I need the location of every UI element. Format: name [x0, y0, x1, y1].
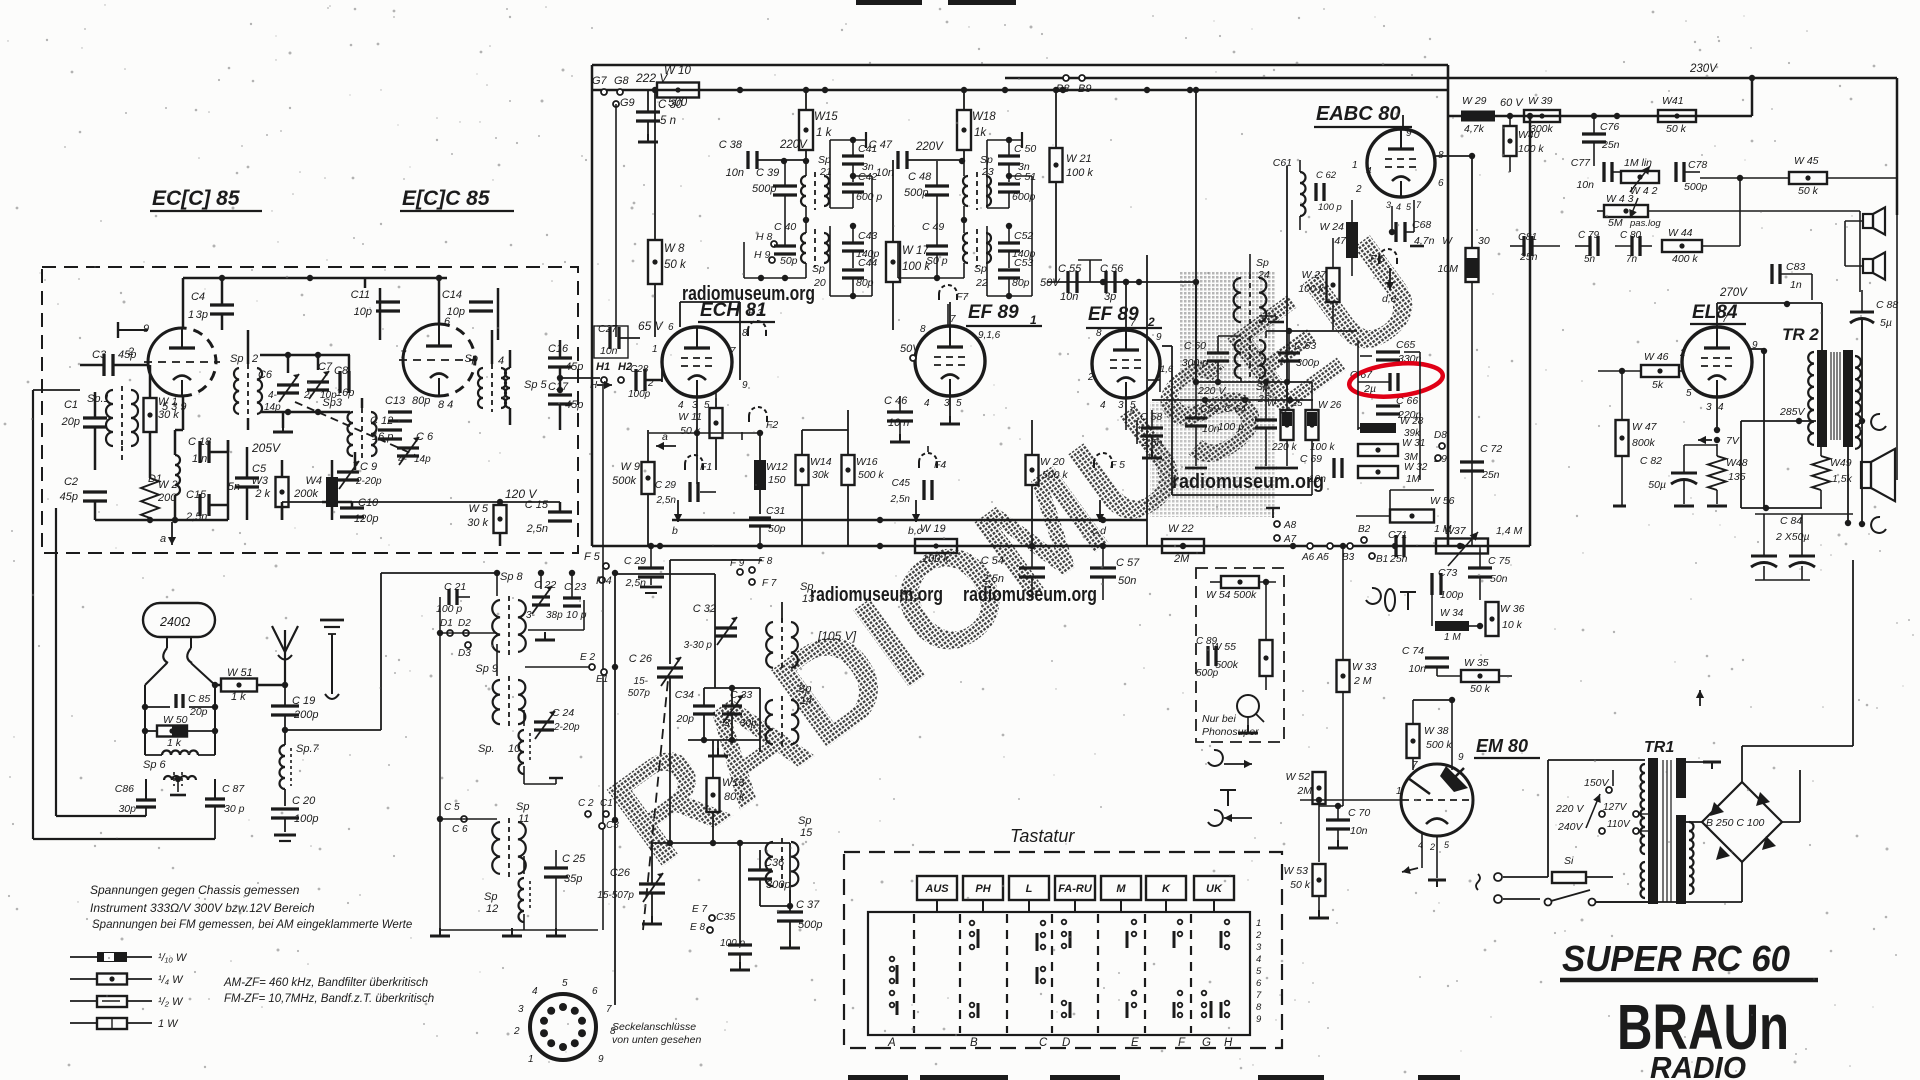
svg-text:W13: W13 [722, 777, 746, 789]
svg-text:2M: 2M [1173, 553, 1190, 565]
svg-text:C16: C16 [548, 343, 569, 355]
svg-text:W 4 3: W 4 3 [1606, 193, 1634, 205]
svg-text:50n: 50n [1490, 573, 1508, 585]
svg-text:W 33: W 33 [1352, 661, 1377, 673]
svg-text:W 38: W 38 [1424, 725, 1449, 737]
svg-text:80p: 80p [856, 277, 874, 289]
svg-text:C 25: C 25 [562, 853, 586, 865]
svg-text:5n: 5n [1584, 254, 1596, 265]
svg-text:1,5k: 1,5k [1832, 473, 1853, 485]
svg-text:7V: 7V [1726, 435, 1740, 447]
svg-text:E 8: E 8 [690, 922, 705, 933]
svg-text:30: 30 [1478, 235, 1490, 247]
svg-text:K: K [1162, 883, 1171, 895]
svg-text:C 2: C 2 [578, 798, 594, 809]
svg-text:100 k: 100 k [902, 261, 931, 273]
svg-text:2-20p: 2-20p [355, 476, 382, 487]
svg-text:G9: G9 [620, 97, 635, 109]
svg-text:Sp.: Sp. [478, 743, 495, 755]
svg-text:F2: F2 [766, 419, 778, 431]
svg-text:2,5n: 2,5n [656, 495, 677, 506]
svg-text:500p: 500p [752, 183, 776, 195]
svg-text:C73: C73 [1438, 567, 1457, 579]
svg-text:C 21: C 21 [444, 581, 466, 593]
svg-text:Seckelanschlüsse: Seckelanschlüsse [612, 1021, 696, 1033]
svg-text:UK: UK [1206, 883, 1223, 895]
svg-text:C8: C8 [334, 365, 349, 377]
svg-text:B9: B9 [1078, 83, 1091, 95]
svg-text:L: L [1026, 883, 1033, 895]
svg-text:285V: 285V [1779, 406, 1806, 418]
svg-text:C 64: C 64 [1224, 403, 1246, 415]
svg-text:200k: 200k [293, 488, 318, 500]
svg-text:300p: 300p [766, 879, 790, 891]
svg-text:EF 89: EF 89 [1088, 304, 1139, 325]
svg-text:a: a [160, 533, 166, 545]
svg-text:4: 4 [498, 355, 504, 367]
svg-text:W 17: W 17 [902, 245, 929, 257]
svg-text:10 k: 10 k [1502, 619, 1523, 631]
svg-text:2: 2 [647, 378, 654, 389]
svg-text:80p: 80p [412, 395, 430, 407]
svg-text:C 69: C 69 [1300, 453, 1322, 465]
svg-text:W16: W16 [856, 456, 878, 468]
svg-text:10n: 10n [1060, 291, 1078, 303]
svg-text:W 45: W 45 [1794, 155, 1819, 167]
svg-text:D1: D1 [148, 473, 162, 485]
svg-text:25n: 25n [1601, 139, 1620, 151]
svg-text:5: 5 [956, 398, 962, 409]
svg-text:C68: C68 [1412, 219, 1431, 231]
svg-text:150: 150 [768, 474, 786, 486]
svg-text:30 k: 30 k [158, 409, 179, 421]
svg-text:Si: Si [1564, 855, 1574, 867]
svg-text:30 k: 30 k [467, 517, 488, 529]
svg-text:14: 14 [800, 695, 812, 707]
svg-text:F 8: F 8 [758, 556, 773, 567]
svg-text:C 55: C 55 [1058, 263, 1082, 275]
svg-text:A7: A7 [1283, 534, 1297, 545]
svg-text:FA-RU: FA-RU [1058, 883, 1093, 895]
svg-text:100 k: 100 k [922, 553, 949, 565]
svg-text:Sp: Sp [1256, 257, 1269, 269]
svg-text:D: D [1062, 1037, 1070, 1049]
svg-text:C7: C7 [318, 361, 333, 373]
svg-text:10n: 10n [726, 167, 744, 179]
svg-text:3: 3 [1118, 400, 1124, 411]
svg-text:C 84: C 84 [1780, 515, 1802, 527]
svg-text:PH: PH [975, 883, 991, 895]
svg-text:30 p: 30 p [224, 803, 245, 815]
svg-text:C 29: C 29 [624, 555, 646, 567]
svg-text:500k: 500k [1215, 659, 1239, 671]
svg-text:3: 3 [518, 1004, 524, 1015]
svg-text:von unten gesehen: von unten gesehen [612, 1034, 701, 1046]
svg-text:H1: H1 [596, 361, 610, 373]
svg-text:E[C]C 85: E[C]C 85 [402, 187, 490, 210]
svg-text:W 50: W 50 [163, 714, 188, 726]
svg-text:F: F [1178, 1037, 1186, 1049]
svg-text:C 75: C 75 [1488, 555, 1510, 567]
svg-text:507p: 507p [628, 688, 651, 699]
svg-text:3-30 p: 3-30 p [684, 640, 713, 651]
svg-text:W 26: W 26 [1318, 400, 1342, 411]
svg-text:¹/₁₀ W: ¹/₁₀ W [158, 952, 188, 964]
svg-text:C 62: C 62 [1316, 170, 1337, 181]
svg-text:50n: 50n [1118, 575, 1136, 587]
svg-text:C 79: C 79 [1578, 230, 1600, 241]
svg-text:30p: 30p [118, 803, 136, 815]
svg-text:Spannungen gegen Chassis geme: Spannungen gegen Chassis gemessen [90, 883, 300, 897]
svg-text:10M: 10M [1438, 263, 1459, 275]
svg-text:5n: 5n [228, 481, 240, 493]
svg-text:¹/₂ W: ¹/₂ W [158, 996, 184, 1008]
svg-text:C11: C11 [351, 289, 370, 301]
svg-text:15-: 15- [634, 676, 649, 687]
svg-text:50 k: 50 k [1290, 879, 1311, 891]
svg-text:2,5n: 2,5n [526, 523, 548, 535]
svg-text:B2: B2 [1358, 524, 1371, 535]
svg-text:45p: 45p [60, 491, 78, 503]
svg-text:4: 4 [678, 400, 684, 411]
svg-text:8: 8 [1096, 328, 1102, 339]
svg-text:B1: B1 [1376, 554, 1388, 565]
svg-text:4: 4 [1718, 402, 1724, 413]
svg-text:30p: 30p [740, 718, 757, 729]
svg-text:W 19: W 19 [920, 523, 946, 535]
svg-text:500p: 500p [904, 187, 928, 199]
svg-text:47: 47 [1334, 235, 1347, 247]
svg-text:¹/₄ W: ¹/₄ W [158, 974, 184, 986]
svg-text:G7: G7 [592, 75, 608, 87]
svg-text:6: 6 [1256, 978, 1262, 989]
svg-text:C 88: C 88 [1876, 299, 1898, 311]
svg-text:135: 135 [1728, 471, 1746, 483]
svg-text:B 250 C 100: B 250 C 100 [1706, 817, 1765, 829]
svg-text:9: 9 [1406, 128, 1412, 139]
svg-text:C 9: C 9 [360, 461, 377, 473]
svg-text:25n: 25n [1519, 251, 1538, 263]
svg-text:radiomuseum.org: radiomuseum.org [810, 584, 943, 606]
svg-text:10: 10 [508, 743, 521, 755]
svg-text:W 46: W 46 [1644, 351, 1669, 363]
svg-text:C78: C78 [1688, 159, 1707, 171]
svg-text:C 6: C 6 [416, 431, 434, 443]
svg-text:50V: 50V [1040, 277, 1061, 289]
svg-text:W 29: W 29 [1462, 95, 1487, 107]
svg-text:C 12: C 12 [370, 415, 393, 427]
svg-text:Sp.7: Sp.7 [296, 743, 320, 755]
svg-text:205V: 205V [251, 441, 281, 455]
svg-text:C 26: C 26 [629, 653, 653, 665]
svg-text:C3: C3 [606, 820, 619, 831]
svg-text:E 7: E 7 [692, 904, 707, 915]
svg-text:8: 8 [920, 324, 926, 335]
svg-text:C34: C34 [675, 689, 694, 701]
svg-text:Sp: Sp [230, 353, 243, 365]
svg-text:E1: E1 [596, 674, 608, 685]
svg-text:10n: 10n [876, 167, 894, 179]
svg-text:Sp: Sp [812, 263, 825, 275]
svg-text:C 72: C 72 [1480, 443, 1502, 455]
svg-text:C1: C1 [64, 399, 78, 411]
svg-text:C 54: C 54 [981, 555, 1004, 567]
svg-text:C35: C35 [716, 911, 735, 923]
svg-text:80 k: 80 k [724, 791, 745, 803]
svg-text:D1: D1 [440, 618, 453, 629]
svg-text:EF 89: EF 89 [968, 302, 1019, 323]
svg-text:1 W: 1 W [158, 1018, 179, 1030]
svg-text:2: 2 [513, 1026, 520, 1037]
svg-text:C 46: C 46 [884, 395, 908, 407]
svg-text:220 V: 220 V [1197, 385, 1226, 397]
svg-text:20p: 20p [675, 713, 694, 725]
svg-text:W12: W12 [766, 461, 788, 473]
svg-text:W 53: W 53 [1283, 865, 1308, 877]
svg-text:C 82: C 82 [1640, 455, 1662, 467]
svg-text:W 8: W 8 [664, 243, 685, 255]
svg-text:C 29: C 29 [655, 480, 677, 491]
svg-text:5k: 5k [1652, 379, 1664, 391]
svg-text:C 63: C 63 [1294, 340, 1316, 352]
svg-text:500: 500 [668, 97, 688, 109]
svg-text:45p: 45p [118, 349, 136, 361]
svg-text:230V: 230V [1689, 63, 1718, 75]
svg-text:C 74: C 74 [1402, 645, 1424, 657]
svg-text:W 24: W 24 [1319, 221, 1344, 233]
svg-text:W: W [1442, 235, 1453, 247]
svg-text:C71: C71 [1388, 529, 1407, 541]
svg-text:45p: 45p [565, 399, 583, 411]
svg-text:14p: 14p [414, 454, 431, 465]
svg-text:C31: C31 [766, 505, 785, 517]
svg-text:EC[C] 85: EC[C] 85 [152, 187, 240, 210]
svg-text:10p: 10p [447, 306, 465, 318]
svg-text:C 24: C 24 [552, 707, 574, 719]
svg-text:6: 6 [1438, 178, 1444, 189]
svg-text:H: H [1224, 1037, 1233, 1049]
svg-text:C 22: C 22 [534, 579, 556, 591]
svg-text:C83: C83 [1786, 261, 1805, 273]
svg-text:110V: 110V [1607, 819, 1631, 830]
svg-text:C 60: C 60 [1184, 340, 1206, 352]
svg-text:C 70: C 70 [1348, 807, 1370, 819]
svg-text:W 39: W 39 [1528, 95, 1553, 107]
svg-text:50p: 50p [768, 523, 786, 535]
svg-text:W 27: W 27 [1301, 269, 1327, 281]
svg-text:Sp 9: Sp 9 [475, 663, 498, 675]
svg-text:2-20p: 2-20p [553, 722, 580, 733]
svg-text:F 6: F 6 [1370, 253, 1385, 265]
svg-text:6: 6 [668, 322, 674, 333]
svg-text:C44: C44 [858, 257, 877, 269]
svg-text:C 56: C 56 [1100, 263, 1124, 275]
svg-text:100 k: 100 k [1298, 283, 1324, 295]
svg-text:2M: 2M [1296, 785, 1312, 797]
svg-text:W 21: W 21 [1066, 153, 1092, 165]
svg-text:C 85: C 85 [188, 693, 210, 705]
svg-text:150V: 150V [1584, 777, 1610, 789]
svg-text:Spannungen bei FM gemessen, be: Spannungen bei FM gemessen, bei AM einge… [92, 919, 412, 931]
svg-text:100 p: 100 p [720, 938, 745, 949]
svg-text:60 V: 60 V [1500, 97, 1524, 109]
svg-text:Sp: Sp [798, 683, 811, 695]
svg-text:b: b [672, 525, 678, 537]
svg-text:W 52: W 52 [1285, 771, 1310, 783]
svg-text:2: 2 [251, 353, 258, 365]
svg-text:H: H [590, 380, 598, 391]
svg-text:22: 22 [975, 277, 988, 289]
svg-text:Sp: Sp [798, 815, 811, 827]
svg-text:7: 7 [1412, 760, 1418, 771]
svg-text:1M: 1M [1406, 474, 1421, 485]
svg-text:C14: C14 [442, 289, 462, 301]
svg-text:600 p: 600 p [856, 191, 882, 203]
svg-text:8 4: 8 4 [438, 399, 453, 411]
svg-text:W 51: W 51 [227, 667, 253, 679]
svg-text:C26: C26 [610, 867, 631, 879]
svg-text:500 k: 500 k [1426, 739, 1452, 751]
svg-text:D3: D3 [458, 648, 471, 659]
svg-text:C 49: C 49 [922, 221, 944, 233]
svg-text:7n: 7n [1626, 254, 1638, 265]
svg-text:d,e: d,e [1382, 293, 1397, 305]
svg-text:9,1,6: 9,1,6 [978, 330, 1001, 341]
svg-text:50p: 50p [780, 255, 798, 267]
svg-text:Sp: Sp [516, 801, 529, 813]
svg-text:C 40: C 40 [774, 221, 796, 233]
svg-text:F 3: F 3 [748, 307, 763, 319]
svg-text:C15: C15 [186, 489, 207, 501]
svg-text:25n: 25n [1481, 469, 1500, 481]
svg-text:300 p: 300 p [1182, 357, 1208, 369]
svg-text:100 k: 100 k [1518, 143, 1544, 155]
svg-text:C 51: C 51 [1014, 171, 1036, 183]
svg-text:FM-ZF= 10,7MHz, Bandf.z.T. übe: FM-ZF= 10,7MHz, Bandf.z.T. überkritisch [224, 993, 434, 1005]
svg-text:240Ω: 240Ω [159, 615, 191, 629]
svg-text:500k: 500k [612, 475, 636, 487]
svg-text:F 5: F 5 [584, 551, 601, 563]
svg-text:W41: W41 [1662, 95, 1684, 107]
svg-text:100 k: 100 k [1310, 442, 1335, 453]
svg-text:100 p: 100 p [1318, 202, 1342, 213]
svg-text:10n: 10n [600, 345, 618, 357]
svg-text:400 k: 400 k [1672, 253, 1698, 265]
svg-text:F 5: F 5 [1110, 459, 1125, 471]
svg-text:25: 25 [1291, 398, 1303, 409]
svg-text:4: 4 [532, 986, 538, 997]
svg-text:9: 9 [598, 1054, 604, 1065]
svg-text:1: 1 [1256, 918, 1261, 929]
svg-text:C77: C77 [1571, 157, 1591, 169]
svg-text:1 k: 1 k [231, 691, 246, 703]
svg-text:3-: 3- [526, 610, 536, 621]
svg-text:Sp.1: Sp.1 [87, 393, 110, 405]
svg-text:220V: 220V [915, 141, 944, 153]
svg-text:W 35: W 35 [1464, 657, 1489, 669]
svg-text:C 37: C 37 [796, 899, 820, 911]
svg-text:120p: 120p [354, 513, 378, 525]
svg-text:3: 3 [1706, 402, 1712, 413]
svg-text:C28: C28 [630, 364, 649, 375]
svg-text:5M: 5M [1608, 217, 1623, 229]
svg-text:7: 7 [950, 314, 956, 325]
svg-text:RADIO: RADIO [1650, 1050, 1746, 1080]
svg-text:Phonosuper: Phonosuper [1202, 726, 1259, 738]
svg-text:1: 1 [652, 344, 658, 355]
svg-text:3: 3 [1386, 200, 1391, 210]
svg-text:W49: W49 [1830, 457, 1852, 469]
svg-text:9: 9 [1256, 1014, 1262, 1025]
svg-text:Tastatur: Tastatur [1010, 826, 1075, 846]
svg-text:C76: C76 [1600, 121, 1619, 133]
svg-text:100p: 100p [294, 813, 318, 825]
svg-text:6: 6 [1130, 406, 1135, 416]
svg-text:W 44: W 44 [1668, 227, 1693, 239]
svg-text:C6: C6 [258, 369, 273, 381]
svg-text:220 V: 220 V [1555, 803, 1584, 815]
svg-text:C 50: C 50 [1014, 143, 1036, 155]
svg-text:5 n: 5 n [660, 115, 676, 127]
svg-text:Sp: Sp [484, 891, 497, 903]
svg-text:100 p: 100 p [1218, 421, 1244, 433]
svg-text:11: 11 [518, 813, 529, 825]
svg-text:AM-ZF= 460 kHz, Bandfilter üb: AM-ZF= 460 kHz, Bandfilter überkritisch [223, 977, 428, 989]
svg-text:300p: 300p [1296, 357, 1320, 369]
svg-text:20p: 20p [61, 416, 80, 428]
svg-text:E: E [1131, 1037, 1139, 1049]
svg-text:F 7: F 7 [762, 578, 777, 589]
svg-text:C61: C61 [1273, 157, 1292, 169]
svg-text:C53: C53 [1014, 257, 1033, 269]
svg-text:65 V: 65 V [638, 319, 664, 333]
svg-text:1: 1 [1396, 786, 1402, 797]
svg-text:TR1: TR1 [1644, 739, 1674, 756]
svg-text:G8: G8 [614, 75, 630, 87]
svg-text:4: 4 [1256, 954, 1261, 965]
svg-text:2: 2 [1679, 348, 1686, 359]
svg-text:C5: C5 [252, 463, 267, 475]
svg-text:200p: 200p [293, 709, 318, 721]
svg-text:3: 3 [1256, 942, 1262, 953]
svg-text:C 32: C 32 [693, 603, 716, 615]
svg-text:C 39: C 39 [756, 167, 779, 179]
svg-text:4: 4 [1366, 166, 1372, 177]
svg-text:2-: 2- [303, 390, 314, 401]
svg-text:1 k: 1 k [167, 737, 182, 749]
svg-text:500p: 500p [1684, 181, 1708, 193]
svg-text:50 k: 50 k [1666, 123, 1687, 135]
svg-text:15: 15 [800, 827, 813, 839]
svg-text:1k: 1k [974, 127, 987, 139]
svg-text:5µ: 5µ [1880, 317, 1892, 329]
svg-text:300k: 300k [1530, 123, 1554, 135]
svg-text:C42: C42 [858, 171, 877, 183]
svg-text:Instrument 333Ω/V 300V bz: Instrument 333Ω/V 300V bzw.12V Bereich [90, 901, 315, 915]
svg-text:2: 2 [1087, 372, 1094, 383]
svg-text:500p: 500p [798, 919, 822, 931]
svg-text:100p: 100p [628, 389, 651, 400]
svg-text:W: W [1267, 398, 1277, 409]
svg-text:EABC 80: EABC 80 [1316, 103, 1400, 125]
svg-text:C3: C3 [92, 349, 107, 361]
svg-text:C 18: C 18 [188, 436, 212, 448]
svg-text:2: 2 [1355, 184, 1362, 195]
svg-text:C 20: C 20 [292, 795, 316, 807]
svg-text:[105 V]: [105 V] [817, 629, 857, 643]
svg-text:2,5n: 2,5n [890, 494, 911, 505]
svg-text:C 5: C 5 [444, 802, 460, 813]
